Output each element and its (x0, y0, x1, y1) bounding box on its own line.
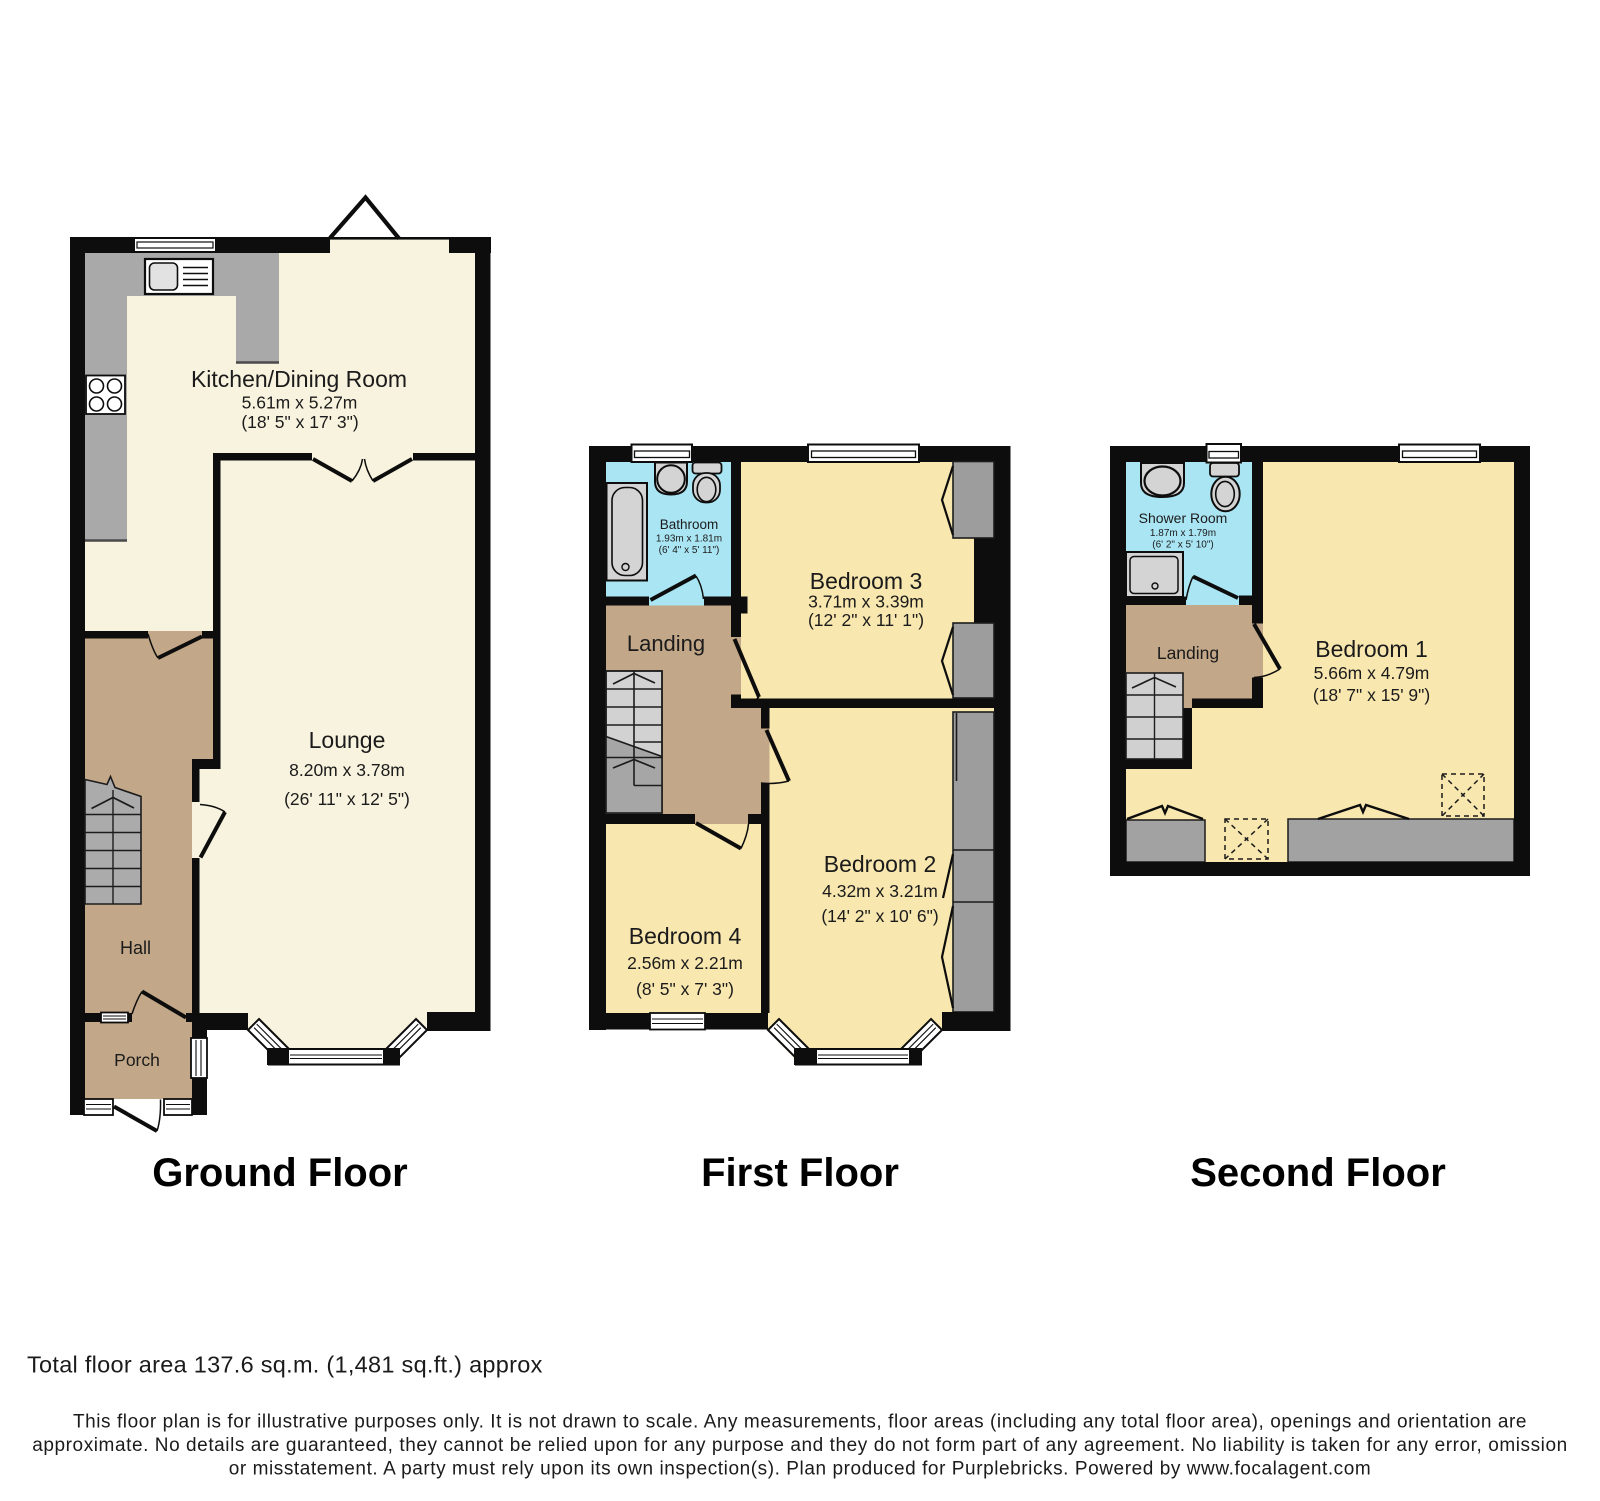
svg-text:(14' 2" x 10' 6"): (14' 2" x 10' 6") (821, 906, 938, 926)
svg-text:5.66m x 4.79m: 5.66m x 4.79m (1314, 663, 1430, 683)
svg-text:Lounge: Lounge (309, 727, 386, 753)
svg-text:3.71m x 3.39m: 3.71m x 3.39m (808, 592, 924, 612)
svg-text:(18' 5" x 17' 3"): (18' 5" x 17' 3") (241, 412, 358, 432)
svg-text:2.56m x 2.21m: 2.56m x 2.21m (627, 953, 743, 973)
svg-text:Porch: Porch (114, 1050, 160, 1070)
svg-text:Bedroom 4: Bedroom 4 (629, 923, 742, 949)
svg-text:Hall: Hall (120, 938, 151, 958)
svg-text:1.87m x 1.79m: 1.87m x 1.79m (1150, 528, 1216, 539)
svg-text:Landing: Landing (627, 631, 705, 656)
svg-text:4.32m x 3.21m: 4.32m x 3.21m (822, 881, 938, 901)
svg-text:Bathroom: Bathroom (660, 517, 719, 532)
svg-text:5.61m x 5.27m: 5.61m x 5.27m (242, 393, 358, 413)
svg-text:Bedroom 2: Bedroom 2 (824, 851, 937, 877)
svg-text:First Floor: First Floor (701, 1151, 899, 1195)
svg-text:1.93m x 1.81m: 1.93m x 1.81m (656, 534, 722, 545)
svg-text:Total floor area 137.6 sq.m. (: Total floor area 137.6 sq.m. (1,481 sq.f… (27, 1352, 543, 1378)
svg-text:(6' 2" x 5' 10"): (6' 2" x 5' 10") (1152, 540, 1214, 551)
svg-text:Second Floor: Second Floor (1190, 1151, 1446, 1195)
svg-text:8.20m x 3.78m: 8.20m x 3.78m (289, 760, 405, 780)
svg-text:Ground Floor: Ground Floor (152, 1151, 408, 1195)
svg-text:approximate. No details are gu: approximate. No details are guaranteed, … (32, 1435, 1567, 1456)
svg-text:(8' 5" x 7' 3"): (8' 5" x 7' 3") (636, 979, 734, 999)
svg-text:(6' 4" x 5' 11"): (6' 4" x 5' 11") (659, 545, 720, 556)
svg-text:Landing: Landing (1157, 643, 1219, 663)
svg-text:Kitchen/Dining Room: Kitchen/Dining Room (191, 366, 407, 392)
svg-text:Shower Room: Shower Room (1139, 510, 1228, 526)
svg-text:or misstatement. A party must: or misstatement. A party must rely upon … (229, 1459, 1372, 1480)
svg-text:(26' 11" x 12' 5"): (26' 11" x 12' 5") (284, 789, 410, 809)
svg-text:(18' 7" x 15' 9"): (18' 7" x 15' 9") (1313, 685, 1430, 705)
svg-text:This floor plan is for illustr: This floor plan is for illustrative purp… (73, 1412, 1527, 1433)
svg-text:(12' 2" x 11' 1"): (12' 2" x 11' 1") (808, 610, 924, 630)
svg-text:Bedroom 3: Bedroom 3 (810, 568, 923, 594)
svg-text:Bedroom 1: Bedroom 1 (1315, 636, 1428, 662)
